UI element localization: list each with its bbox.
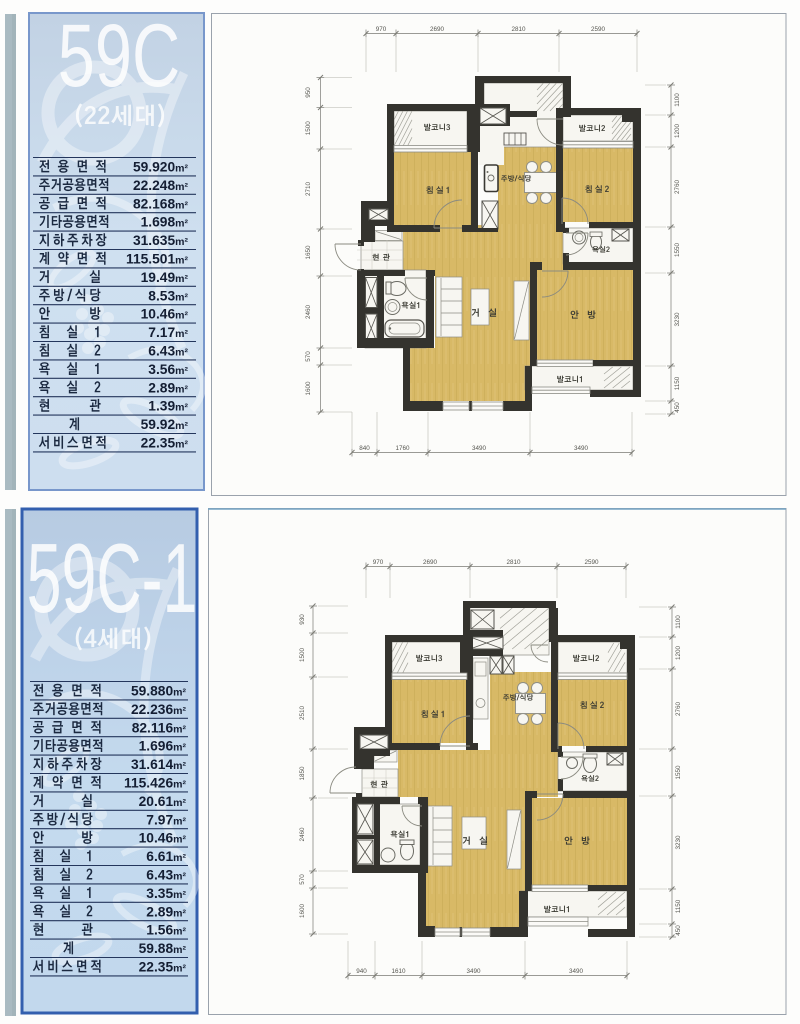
svg-text:1500: 1500	[299, 648, 306, 663]
svg-text:59C-1: 59C-1	[27, 525, 198, 633]
svg-text:3230: 3230	[674, 312, 681, 327]
svg-text:1550: 1550	[675, 765, 682, 780]
svg-text:2590: 2590	[584, 559, 599, 566]
svg-text:3.56m²: 3.56m²	[148, 362, 188, 377]
svg-text:1550: 1550	[674, 243, 681, 258]
svg-text:22.236m²: 22.236m²	[131, 702, 187, 717]
svg-text:6.61m²: 6.61m²	[146, 849, 186, 864]
svg-text:970: 970	[376, 26, 387, 33]
svg-text:950: 950	[305, 87, 312, 98]
svg-text:970: 970	[373, 559, 384, 566]
svg-text:19.49m²: 19.49m²	[141, 270, 189, 285]
svg-text:10.46m²: 10.46m²	[141, 307, 189, 322]
svg-text:59.92m²: 59.92m²	[141, 417, 189, 432]
svg-text:3490: 3490	[466, 968, 481, 975]
svg-text:59.920m²: 59.920m²	[133, 160, 189, 175]
svg-text:2460: 2460	[305, 305, 312, 320]
svg-text:31.614m²: 31.614m²	[131, 757, 187, 772]
svg-text:2810: 2810	[511, 26, 526, 33]
svg-text:1.39m²: 1.39m²	[148, 399, 188, 414]
svg-text:940: 940	[356, 968, 367, 975]
svg-text:1100: 1100	[674, 93, 681, 107]
svg-text:3490: 3490	[472, 445, 487, 452]
svg-text:450: 450	[675, 925, 682, 936]
svg-text:1610: 1610	[391, 968, 406, 975]
svg-text:115.426m²: 115.426m²	[124, 776, 186, 791]
svg-text:2510: 2510	[299, 706, 306, 721]
svg-text:1200: 1200	[675, 646, 682, 661]
svg-text:1150: 1150	[674, 376, 681, 390]
svg-text:22.35m²: 22.35m²	[139, 960, 187, 975]
svg-text:10.46m²: 10.46m²	[139, 831, 187, 846]
svg-text:1650: 1650	[305, 245, 312, 260]
svg-text:570: 570	[299, 874, 306, 885]
svg-text:2760: 2760	[674, 180, 681, 195]
svg-text:20.61m²: 20.61m²	[139, 794, 187, 809]
svg-text:7.17m²: 7.17m²	[148, 325, 188, 340]
svg-text:1500: 1500	[305, 121, 312, 136]
svg-text:2590: 2590	[591, 26, 606, 33]
svg-text:2710: 2710	[305, 182, 312, 197]
svg-text:3230: 3230	[675, 835, 682, 850]
svg-text:2.89m²: 2.89m²	[148, 380, 188, 395]
svg-text:2690: 2690	[430, 26, 445, 33]
svg-text:8.53m²: 8.53m²	[148, 288, 188, 303]
svg-text:59.88m²: 59.88m²	[139, 941, 187, 956]
svg-text:3.35m²: 3.35m²	[146, 886, 186, 901]
svg-text:1150: 1150	[675, 899, 682, 913]
svg-text:1.698m²: 1.698m²	[141, 215, 189, 230]
svg-text:31.635m²: 31.635m²	[133, 233, 189, 248]
svg-text:59.880m²: 59.880m²	[131, 684, 187, 699]
svg-text:840: 840	[359, 445, 370, 452]
svg-text:1600: 1600	[299, 904, 306, 919]
svg-text:450: 450	[674, 402, 681, 413]
svg-text:1760: 1760	[395, 445, 410, 452]
svg-text:1.696m²: 1.696m²	[139, 739, 187, 754]
svg-text:22.248m²: 22.248m²	[133, 178, 189, 193]
svg-text:7.97m²: 7.97m²	[146, 812, 186, 827]
svg-text:1850: 1850	[299, 766, 306, 781]
svg-text:22.35m²: 22.35m²	[141, 436, 189, 451]
svg-text:6.43m²: 6.43m²	[148, 344, 188, 359]
svg-text:115.501m²: 115.501m²	[126, 252, 188, 267]
svg-text:570: 570	[305, 351, 312, 362]
svg-text:2690: 2690	[423, 559, 438, 566]
svg-text:6.43m²: 6.43m²	[146, 868, 186, 883]
svg-text:82.116m²: 82.116m²	[132, 720, 187, 735]
svg-text:2810: 2810	[506, 559, 521, 566]
svg-text:930: 930	[299, 614, 306, 625]
svg-text:3490: 3490	[574, 445, 589, 452]
svg-text:59C: 59C	[58, 6, 180, 106]
svg-text:1200: 1200	[674, 124, 681, 139]
svg-text:82.168m²: 82.168m²	[133, 196, 189, 211]
svg-text:1.56m²: 1.56m²	[146, 923, 186, 938]
svg-text:3490: 3490	[569, 968, 584, 975]
svg-text:2460: 2460	[299, 827, 306, 842]
svg-text:1600: 1600	[305, 381, 312, 396]
svg-text:1100: 1100	[675, 615, 682, 629]
svg-text:2760: 2760	[675, 702, 682, 717]
svg-text:2.89m²: 2.89m²	[146, 904, 186, 919]
